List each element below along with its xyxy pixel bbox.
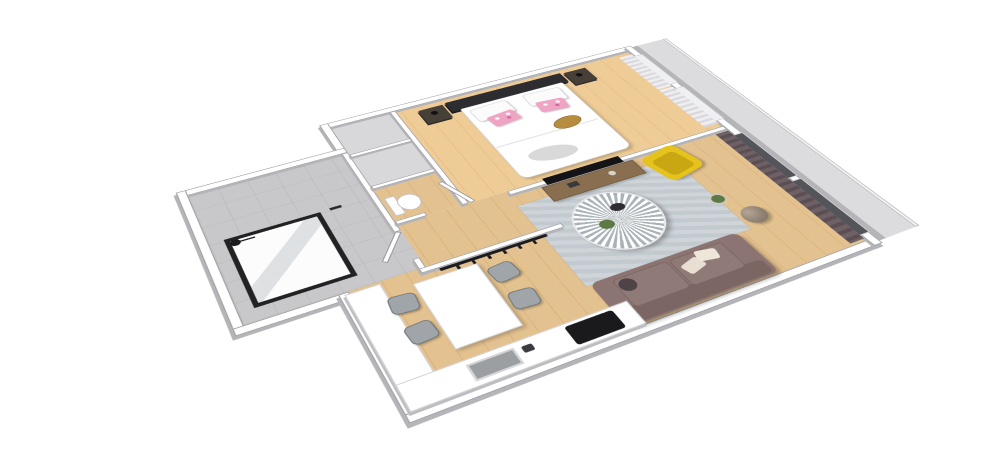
scene-tilt: [169, 94, 842, 354]
floorplan-canvas: [0, 0, 990, 464]
floorplan: [176, 51, 867, 455]
